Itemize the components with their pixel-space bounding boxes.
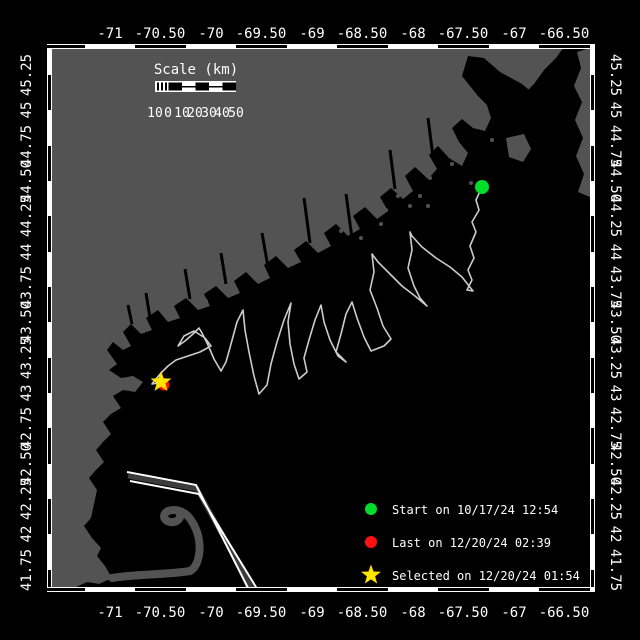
- lon-axis-top: -71 -70.50 -70 -69.50 -69 -68.50 -68 -67…: [97, 26, 589, 42]
- lon-tick-label: -70: [198, 605, 223, 621]
- lat-tick-label: 45.25: [607, 54, 623, 96]
- lon-tick-label: -69.50: [236, 26, 287, 42]
- lat-tick-label: 43: [607, 385, 623, 402]
- lon-tick-label: -68: [400, 26, 425, 42]
- lat-tick-label: 43.50: [19, 301, 35, 343]
- legend-last-label: Last on 12/20/24 02:39: [392, 536, 551, 550]
- lat-tick-label: 44.25: [19, 195, 35, 237]
- lat-tick-label: 41.75: [19, 549, 35, 591]
- lat-tick-label: 42.25: [19, 478, 35, 520]
- lon-axis-bottom: -71 -70.50 -70 -69.50 -69 -68.50 -68 -67…: [97, 605, 589, 621]
- lon-tick-label: -69.50: [236, 605, 287, 621]
- lon-tick-label: -67.50: [438, 26, 489, 42]
- legend-start-dot-icon: [365, 503, 377, 515]
- lat-tick-label: 44.25: [607, 195, 623, 237]
- lat-tick-label: 45: [19, 102, 35, 119]
- start-position-marker[interactable]: [475, 180, 489, 194]
- lon-tick-label: -69: [299, 26, 324, 42]
- scale-bar-labels: 10 0 10 20 30 40 50: [147, 106, 244, 121]
- lat-axis-right: 45.25 45 44.75 44.50 44.25 44 43.75 43.5…: [607, 54, 623, 591]
- lon-tick-label: -70: [198, 26, 223, 42]
- lon-tick-label: -68.50: [337, 605, 388, 621]
- lat-tick-label: 42: [607, 526, 623, 543]
- lon-tick-label: -67.50: [438, 605, 489, 621]
- scale-bar-title: Scale (km): [154, 62, 238, 78]
- lon-tick-label: -71: [97, 26, 122, 42]
- legend-last-dot-icon: [365, 536, 377, 548]
- lon-tick-label: -67: [501, 26, 526, 42]
- lon-tick-label: -71: [97, 605, 122, 621]
- lat-tick-label: 43.25: [19, 337, 35, 379]
- lat-axis-left: 45.25 45 44.75 44.50 44.25 44 43.75 43.5…: [19, 54, 35, 591]
- drifter-map-window: Scale (km) 10 0 10 20 30 40 50: [0, 0, 640, 640]
- legend-last-row: Last on 12/20/24 02:39: [365, 536, 551, 550]
- scale-tick-label: 0: [164, 106, 172, 121]
- lat-tick-label: 45: [607, 102, 623, 119]
- lon-tick-label: -67: [501, 605, 526, 621]
- lat-tick-label: 44: [19, 244, 35, 261]
- legend-start-label: Start on 10/17/24 12:54: [392, 503, 558, 517]
- scale-tick-label: 50: [228, 106, 244, 121]
- scale-tick-label: 10: [147, 106, 163, 121]
- map-canvas[interactable]: Scale (km) 10 0 10 20 30 40 50: [0, 0, 640, 640]
- scale-bar: Scale (km) 10 0 10 20 30 40 50: [147, 62, 244, 121]
- lon-tick-label: -69: [299, 605, 324, 621]
- legend-selected-label: Selected on 12/20/24 01:54: [392, 569, 580, 583]
- lat-tick-label: 44: [607, 244, 623, 261]
- lat-tick-label: 41.75: [607, 549, 623, 591]
- lat-tick-label: 42: [19, 526, 35, 543]
- lon-tick-label: -70.50: [135, 605, 186, 621]
- lon-tick-label: -68.50: [337, 26, 388, 42]
- lat-tick-label: 43.25: [607, 337, 623, 379]
- legend-start-row: Start on 10/17/24 12:54: [365, 503, 558, 517]
- lat-tick-label: 43: [19, 385, 35, 402]
- legend: Start on 10/17/24 12:54 Last on 12/20/24…: [361, 503, 580, 583]
- lon-tick-label: -66.50: [539, 26, 590, 42]
- lat-tick-label: 42.75: [19, 407, 35, 449]
- lon-tick-label: -68: [400, 605, 425, 621]
- lon-tick-label: -70.50: [135, 26, 186, 42]
- lon-tick-label: -66.50: [539, 605, 590, 621]
- lat-tick-label: 45.25: [19, 54, 35, 96]
- lat-tick-label: 42.25: [607, 478, 623, 520]
